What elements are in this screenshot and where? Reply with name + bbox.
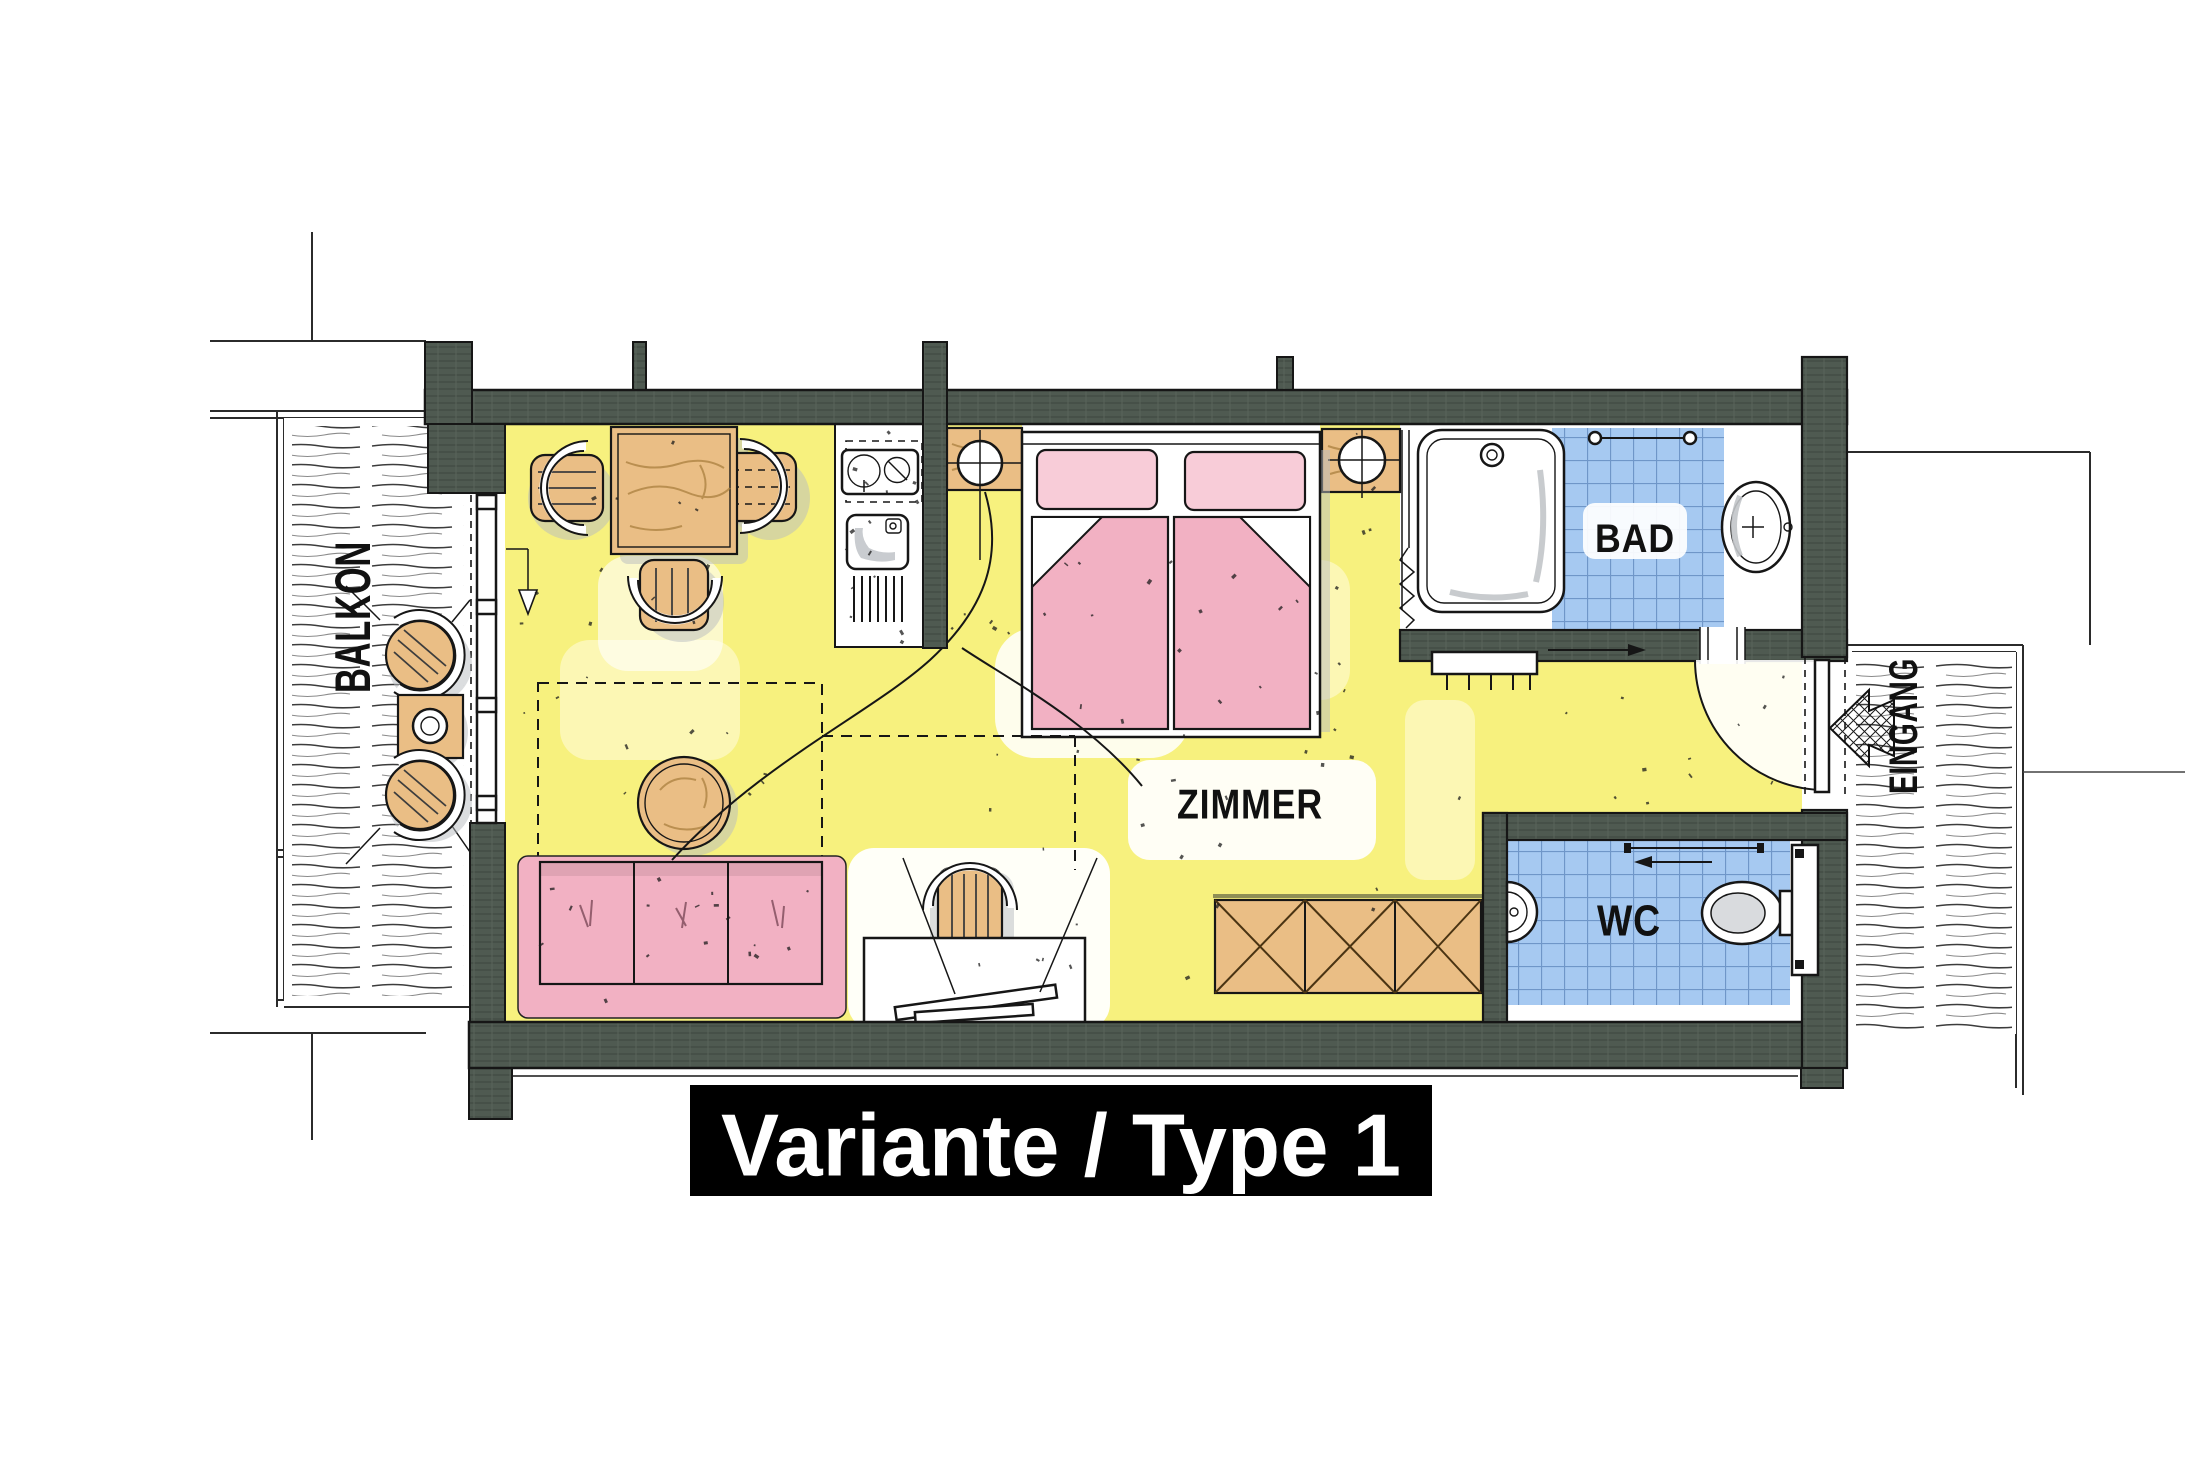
- wall-top: [425, 390, 1847, 424]
- dining-chair-bottom: [628, 560, 722, 630]
- wall-stub: [425, 342, 472, 424]
- wall-left-lower: [470, 823, 505, 1029]
- label-balkon: BALKON: [325, 541, 381, 693]
- door-leaf: [1815, 660, 1829, 792]
- wardrobe: [1213, 896, 1483, 993]
- label-bad: BAD: [1595, 517, 1675, 561]
- wall-stub: [633, 342, 646, 390]
- title-banner: Variante / Type 1: [690, 1085, 1432, 1196]
- bath-sink: [1722, 482, 1792, 572]
- fridge: [847, 515, 908, 569]
- pillow-right: [1185, 452, 1305, 510]
- balcony-set: [386, 610, 472, 842]
- label-wc: WC: [1597, 897, 1661, 946]
- floor-plan-drawing: BALKON ZIMMER BAD WC EINGANG Variante / …: [0, 0, 2200, 1466]
- cooktop: [842, 450, 918, 494]
- title-banner-text: Variante / Type 1: [721, 1096, 1401, 1195]
- wall-bottom: [469, 1022, 1810, 1068]
- wall-wc-left: [1483, 813, 1507, 1022]
- wc-door: [1792, 845, 1818, 975]
- double-bed: [1022, 432, 1330, 737]
- dining-chair-left: [531, 441, 603, 535]
- fridge-vent: [854, 576, 902, 622]
- wall-kitchen-pier: [923, 342, 947, 648]
- label-zimmer: ZIMMER: [1177, 781, 1323, 828]
- label-eingang: EINGANG: [1882, 658, 1926, 794]
- floor-plan-page: BALKON ZIMMER BAD WC EINGANG Variante / …: [0, 0, 2200, 1466]
- wall-stub: [1801, 1068, 1843, 1088]
- dining-table: [611, 427, 737, 554]
- wall-stub: [1277, 357, 1293, 390]
- vanity-right: [1322, 429, 1400, 498]
- wall-wc-top: [1483, 813, 1847, 840]
- wall-right-upper: [1802, 357, 1847, 657]
- bathtub: [1400, 430, 1564, 628]
- balcony-table: [398, 695, 463, 758]
- pillow-left: [1037, 450, 1157, 509]
- wall-left-upper: [428, 424, 505, 493]
- sofa: [518, 856, 846, 1018]
